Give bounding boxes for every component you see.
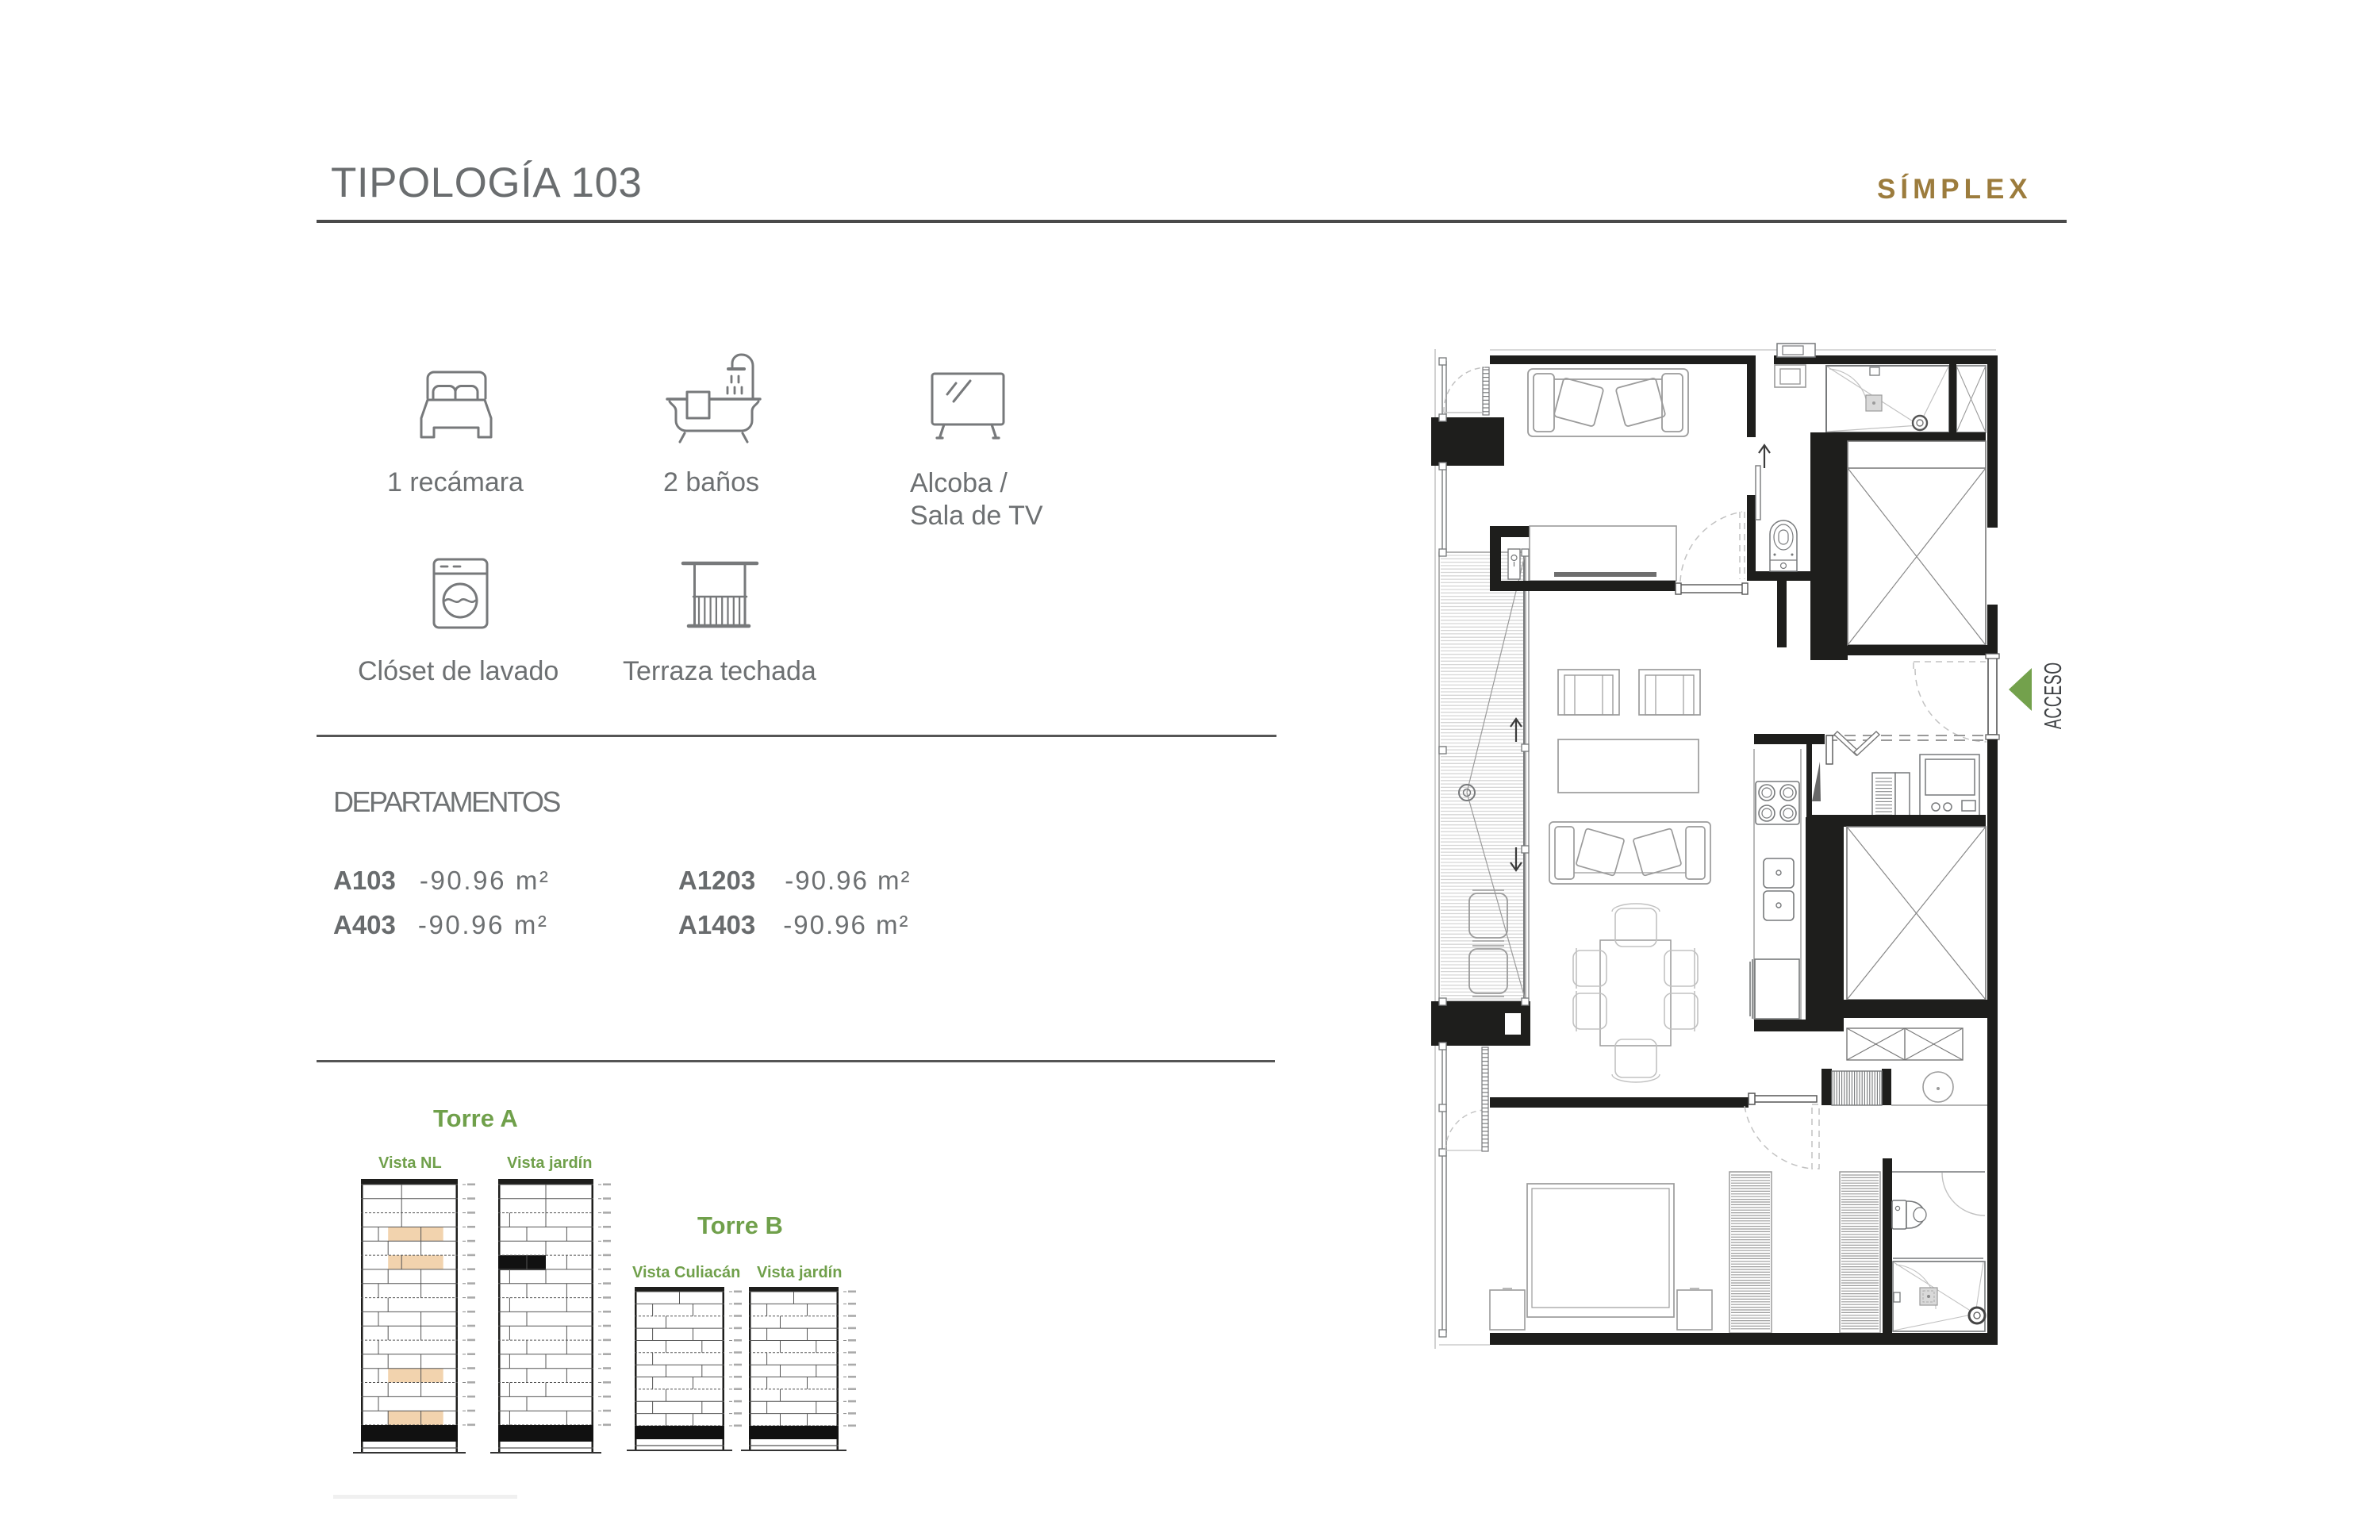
svg-text:ACCESO: ACCESO (2040, 662, 2067, 729)
